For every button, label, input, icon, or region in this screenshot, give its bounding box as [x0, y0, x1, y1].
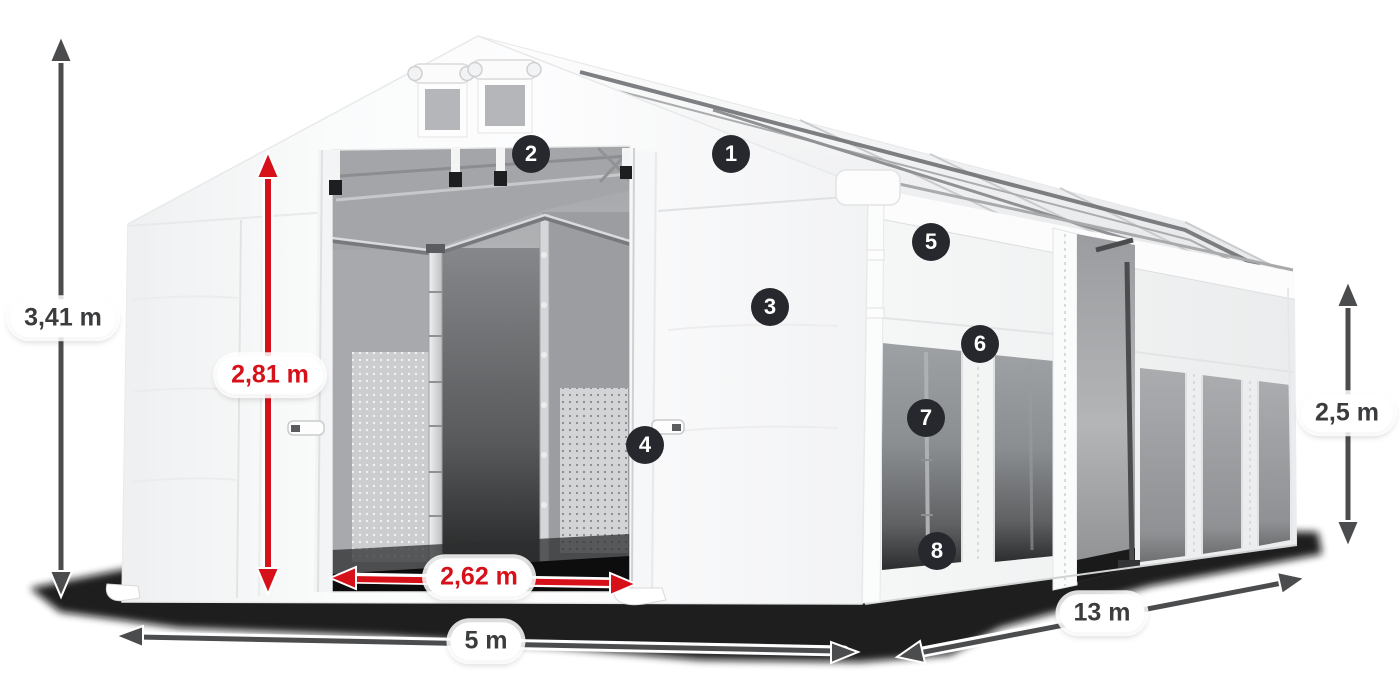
callout-badge-8: 8: [918, 532, 956, 570]
interior-center-pole: [426, 244, 445, 568]
side-window-1: [882, 343, 962, 570]
dimension-label-door-width: 2,62 m: [426, 558, 532, 596]
tent-dimension-diagram: 3,41 m 2,81 m 2,62 m 5 m 2,5 m 13 m 1 2 …: [0, 0, 1400, 700]
side-open-section: [1077, 234, 1140, 582]
side-window-5: [1258, 381, 1290, 546]
side-window-2: [994, 355, 1054, 562]
interior-door-frame-pole: [540, 214, 549, 562]
side-window-4: [1202, 375, 1242, 554]
gable-vent-right: [468, 60, 541, 133]
callout-badge-1: 1: [712, 135, 750, 173]
callout-badge-2: 2: [512, 135, 550, 173]
callout-badge-7: 7: [907, 399, 945, 437]
eave-corner-cover: [836, 170, 900, 205]
dimension-label-side-height: 2,5 m: [1301, 394, 1393, 432]
callout-badge-3: 3: [751, 288, 789, 326]
callout-badge-4: 4: [626, 426, 664, 464]
tent-illustration: [0, 0, 1400, 700]
side-window-3: [1140, 368, 1186, 562]
gable-vent-left: [408, 64, 474, 137]
dimension-label-front-width: 5 m: [450, 622, 521, 660]
interior-mesh-window-right: [560, 388, 628, 553]
tent-interior: [332, 146, 630, 592]
dimension-label-length: 13 m: [1060, 594, 1145, 632]
dimension-label-door-height: 2,81 m: [217, 356, 323, 394]
dimension-label-total-height: 3,41 m: [10, 299, 116, 337]
left-door-handle: [288, 421, 324, 435]
callout-badge-6: 6: [961, 325, 999, 363]
callout-badge-5: 5: [912, 223, 950, 261]
interior-mesh-window-left: [352, 352, 432, 562]
